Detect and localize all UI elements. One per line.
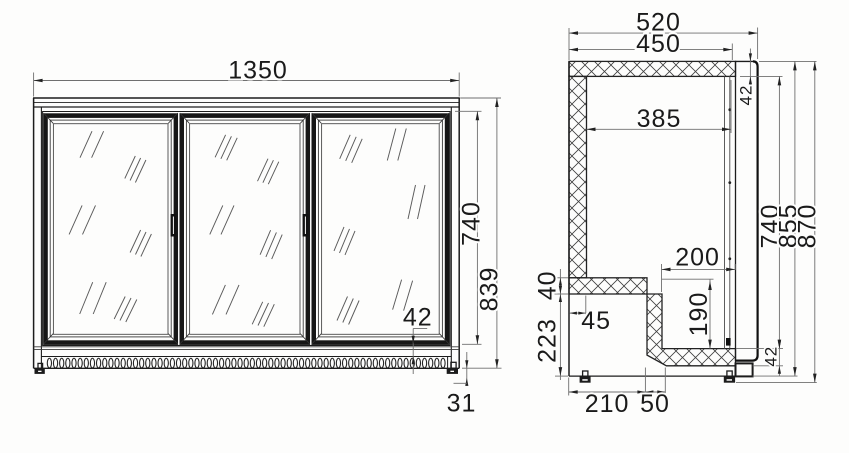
svg-text:839: 839 <box>475 267 503 312</box>
svg-text:190: 190 <box>685 292 713 337</box>
svg-text:1350: 1350 <box>228 56 288 84</box>
svg-text:40: 40 <box>534 270 562 300</box>
svg-text:450: 450 <box>636 30 681 58</box>
svg-text:45: 45 <box>581 307 611 335</box>
svg-text:870: 870 <box>794 204 822 249</box>
svg-text:50: 50 <box>640 390 670 418</box>
svg-text:42: 42 <box>403 303 433 331</box>
svg-text:740: 740 <box>457 201 485 246</box>
svg-text:31: 31 <box>447 389 477 417</box>
svg-text:42: 42 <box>761 346 780 367</box>
svg-text:385: 385 <box>637 105 682 133</box>
svg-text:200: 200 <box>675 244 720 272</box>
svg-text:210: 210 <box>585 390 630 418</box>
svg-text:223: 223 <box>534 318 562 363</box>
svg-text:42: 42 <box>737 85 756 106</box>
